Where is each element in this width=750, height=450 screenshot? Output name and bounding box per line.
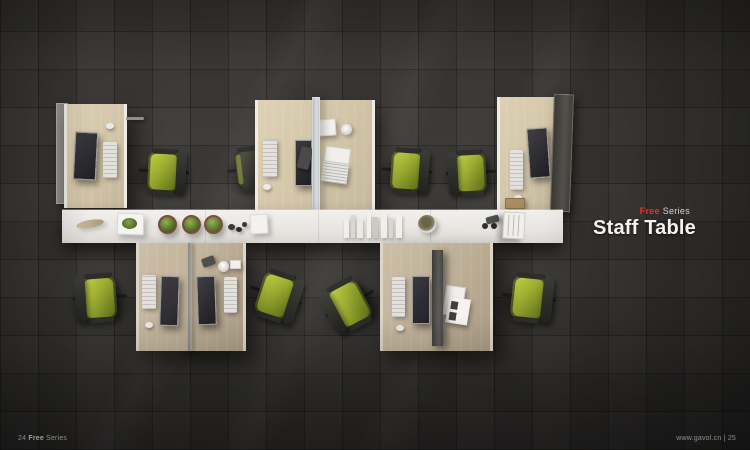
- page-number-right: 25: [728, 435, 736, 442]
- standing-book: [357, 219, 363, 238]
- standing-book: [351, 215, 355, 238]
- series-name: Free: [640, 206, 660, 216]
- keyboard: [224, 277, 237, 313]
- plant-pot: [158, 215, 177, 234]
- keyboard: [103, 142, 117, 178]
- keyboard: [392, 277, 405, 317]
- keyboard: [510, 150, 523, 190]
- mouse: [263, 184, 271, 190]
- series-label: Free Series: [593, 206, 690, 216]
- desk-edge: [243, 243, 246, 351]
- standing-book: [389, 218, 393, 238]
- file-organizer: [502, 211, 525, 239]
- monitor: [526, 127, 550, 178]
- phone: [201, 255, 216, 268]
- pebble: [228, 224, 235, 230]
- shelf-seam: [318, 210, 319, 243]
- planter-tray: [117, 213, 145, 236]
- pebble: [242, 222, 247, 227]
- credenza-shelf: [62, 210, 563, 243]
- coffee-cup: [218, 261, 229, 272]
- coffee-cup: [341, 124, 352, 135]
- feather-ornament: [76, 218, 105, 231]
- page-title: Staff Table: [593, 217, 696, 240]
- mouse: [396, 325, 404, 331]
- decor-bowl: [418, 215, 436, 233]
- partition-panel-dark: [550, 94, 574, 213]
- footer-url: www.gavol.cn: [676, 435, 721, 442]
- green-task-chair: [377, 141, 437, 201]
- paper-stack: [249, 214, 268, 235]
- chair-seat: [454, 152, 487, 194]
- standing-book: [396, 215, 402, 238]
- green-task-chair: [135, 143, 194, 202]
- standing-book: [367, 214, 371, 238]
- laptop-keyboard: [321, 161, 350, 184]
- desk-screen-divider: [312, 97, 320, 215]
- green-task-chair: [496, 265, 562, 331]
- open-magazine: [445, 296, 471, 325]
- footer-series-bold: Free: [28, 435, 44, 442]
- desk-edge: [497, 97, 500, 210]
- monitor: [412, 276, 430, 324]
- catalog-page: Free Series Staff Table 24 Free Series w…: [0, 0, 750, 450]
- plant-pot: [204, 215, 223, 234]
- task-light: [126, 117, 144, 120]
- page-number-left: 24: [18, 435, 26, 442]
- mouse: [145, 322, 153, 328]
- monitor: [196, 276, 217, 326]
- desk-screen-divider-dark: [432, 250, 443, 346]
- plant: [122, 218, 137, 230]
- standing-book: [373, 217, 378, 238]
- desk-edge: [372, 100, 375, 212]
- keyboard: [263, 140, 277, 177]
- keyboard: [142, 275, 156, 309]
- caption-block: Free Series Staff Table: [593, 206, 696, 240]
- standing-book: [381, 214, 387, 238]
- desk-edge: [64, 104, 67, 208]
- wooden-box: [505, 198, 525, 209]
- desk-edge: [380, 243, 383, 351]
- green-task-chair: [442, 144, 501, 203]
- pebble: [236, 227, 242, 232]
- series-word: Series: [663, 206, 690, 216]
- green-task-chair: [68, 266, 133, 331]
- desk-edge: [490, 243, 493, 351]
- plant-pot: [182, 215, 201, 234]
- monitor: [73, 131, 98, 180]
- mouse: [106, 123, 114, 129]
- footer-separator: |: [724, 435, 726, 442]
- footer-series-rest: Series: [46, 435, 67, 442]
- standing-book: [344, 218, 349, 238]
- desk-edge: [255, 100, 258, 212]
- desk-center-rail: [188, 243, 192, 351]
- monitor: [159, 276, 180, 327]
- laptop: [321, 145, 352, 184]
- desk-edge: [136, 243, 139, 351]
- workstation-desk: [64, 104, 127, 208]
- footer-left: 24 Free Series: [18, 435, 67, 442]
- workstation-desk: [497, 97, 556, 210]
- glasses: [482, 223, 498, 230]
- footer-right: www.gavol.cn | 25: [676, 435, 736, 442]
- notepad: [230, 260, 241, 269]
